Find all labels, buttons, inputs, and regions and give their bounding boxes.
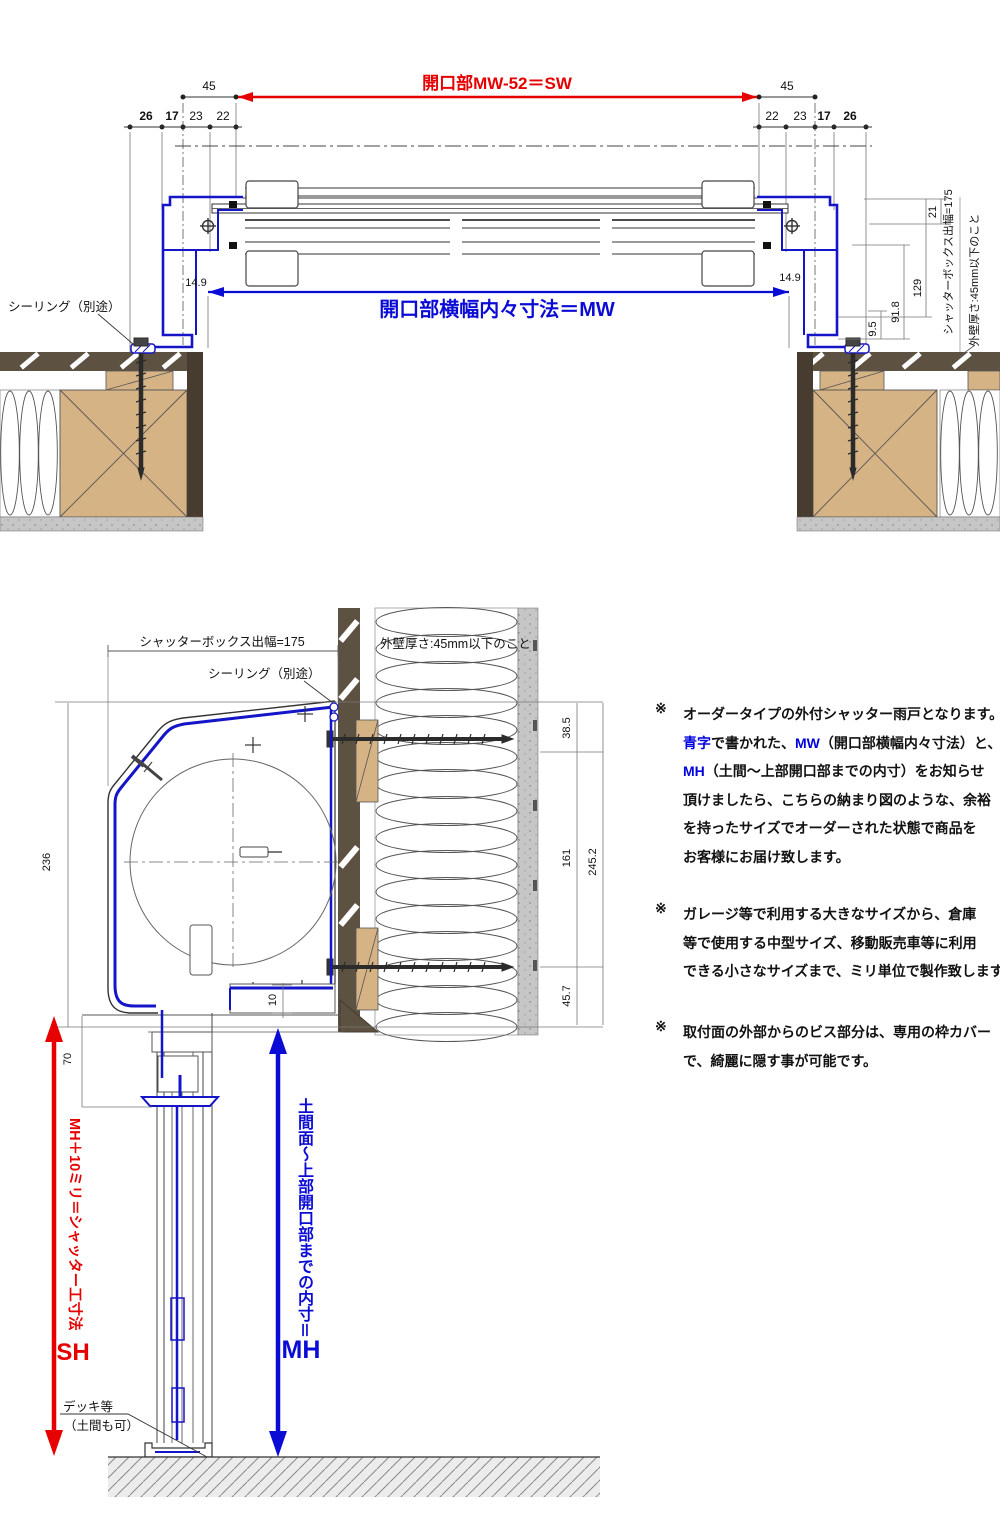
note-screw-cover: ※ 取付面の外部からのビス部分は、専用の枠カバー で、綺麗に隠す事が可能です。 xyxy=(655,1018,991,1075)
bolt-left xyxy=(200,218,216,234)
right-wall-section xyxy=(797,352,1000,531)
dim-95: 9.5 xyxy=(867,321,879,336)
sealing-label-top: シーリング（別途） xyxy=(8,299,121,314)
wall-note-bottom: 外壁厚さ:45mm以下のこと xyxy=(380,636,531,651)
note-text: 等で使用する中型サイズ、移動販売車等に利用 xyxy=(683,935,977,951)
red-sh-dimension: MH＋10ミリ＝シャッター工寸法 SH xyxy=(45,1016,90,1456)
dim-161: 161 xyxy=(561,849,573,867)
note-text: 頂けましたら、こちらの納まり図のような、余裕 xyxy=(683,792,991,808)
ground xyxy=(108,1457,600,1497)
note-sizes: ※ ガレージ等で利用する大きなサイズから、倉庫 等で使用する中型サイズ、移動販売… xyxy=(655,900,1000,986)
note-text: ガレージ等で利用する大きなサイズから、倉庫 xyxy=(683,906,976,922)
red-sw-dimension: 開口部MW-52＝SW xyxy=(238,73,757,102)
dim-dots xyxy=(128,95,869,130)
blue-mw-label: 開口部横幅内々寸法＝MW xyxy=(379,297,615,321)
dim-26-right: 26 xyxy=(843,109,857,123)
note-text: オーダータイプの外付シャッター雨戸となります。 xyxy=(683,706,1000,722)
dim-17-left: 17 xyxy=(165,109,179,123)
note-text: で書かれた、 xyxy=(711,735,795,751)
bolt-right xyxy=(784,218,800,234)
right-frame-profile xyxy=(757,197,864,353)
note-marker: ※ xyxy=(655,1018,667,1035)
note-text-blue: 青字 xyxy=(683,735,711,751)
note-text: できる小さなサイズまで、ミリ単位で製作致します。 xyxy=(683,963,1000,979)
dim-918: 91.8 xyxy=(890,301,902,322)
gasket-right-1 xyxy=(763,201,771,208)
note-marker: ※ xyxy=(655,900,667,917)
note-text: お客様にお届け致します。 xyxy=(683,849,850,865)
sealing-label-bottom: シーリング（別途） xyxy=(208,666,321,681)
note-text: （土間～上部開口部までの内寸）をお知らせ xyxy=(705,763,985,779)
note-text: を持ったサイズでオーダーされた状態で商品を xyxy=(683,820,977,836)
sealing-leader-bottom xyxy=(304,681,333,703)
wall-note-top: 外壁厚さ:45mm以下のこと xyxy=(967,214,981,347)
guide-rail xyxy=(55,1010,603,1457)
blue-mw-dimension: 開口部横幅内々寸法＝MW xyxy=(208,287,789,321)
dim-17-right: 17 xyxy=(817,109,831,123)
note-text: 取付面の外部からのビス部分は、専用の枠カバー xyxy=(683,1024,991,1040)
dim-22-right: 22 xyxy=(765,109,779,123)
dim-2452: 245.2 xyxy=(587,848,599,876)
shutter-installation-drawing: 45 45 開口部MW-52＝SW 26 17 23 22 22 23 17 2… xyxy=(0,0,1000,1517)
gasket-right-2 xyxy=(763,242,771,249)
bottom-section-drawing: シャッターボックス出幅=175 シーリング（別途） 外壁厚さ:45mm以下のこと… xyxy=(41,608,603,1498)
gasket-left-1 xyxy=(229,201,237,208)
dim-22-left: 22 xyxy=(216,109,230,123)
dim-23-left: 23 xyxy=(189,109,203,123)
deck-label-1: デッキ等 xyxy=(63,1399,113,1414)
note-text: で、綺麗に隠す事が可能です。 xyxy=(683,1053,877,1069)
guide-blocks xyxy=(246,181,754,286)
sealing-leader-top xyxy=(98,314,133,344)
box-width-label-bottom: シャッターボックス出幅=175 xyxy=(139,634,304,649)
red-sh-label: SH xyxy=(56,1339,89,1366)
note-text: （開口部横幅内々寸法）と、 xyxy=(820,735,1000,751)
dim-26-left: 26 xyxy=(139,109,153,123)
box-width-label-top: シャッターボックス出幅=175 xyxy=(941,189,955,334)
note-text-blue: MH xyxy=(683,763,705,779)
wall-vertical xyxy=(338,608,538,1042)
dim-21: 21 xyxy=(927,206,939,218)
note-text-blue: MW xyxy=(795,735,820,751)
dim-385: 38.5 xyxy=(561,717,573,738)
shutter-box xyxy=(108,701,342,1013)
dim-149-right: 14.9 xyxy=(779,272,800,284)
note-marker: ※ xyxy=(655,700,667,717)
blue-mh-label: MH xyxy=(282,1336,321,1364)
red-sh-vertical-label: MH＋10ミリ＝シャッター工寸法 xyxy=(66,1118,84,1331)
dim-457: 45.7 xyxy=(561,985,573,1006)
dim-45-right: 45 xyxy=(780,79,794,93)
left-frame-profile xyxy=(136,197,243,353)
dim-10: 10 xyxy=(267,994,279,1006)
dim-129: 129 xyxy=(912,279,924,297)
blue-mh-vertical-label: 土間面～上部開口部までの内寸＝ xyxy=(291,1098,315,1338)
left-wall-section xyxy=(0,352,203,531)
gasket-left-2 xyxy=(229,242,237,249)
red-sw-label: 開口部MW-52＝SW xyxy=(422,73,573,93)
sealing-and-screws xyxy=(131,338,869,479)
dim-45-left: 45 xyxy=(202,79,216,93)
dim-149-left: 14.9 xyxy=(185,277,206,289)
note-order-type: ※ オーダータイプの外付シャッター雨戸となります。 青字で書かれた、MW（開口部… xyxy=(655,700,1000,871)
dim-23-right: 23 xyxy=(793,109,807,123)
dim-70: 70 xyxy=(62,1053,74,1065)
deck-label-2: （土間も可） xyxy=(64,1419,139,1433)
dim-236: 236 xyxy=(41,853,53,871)
top-section-drawing: 45 45 開口部MW-52＝SW 26 17 23 22 22 23 17 2… xyxy=(0,73,1000,531)
